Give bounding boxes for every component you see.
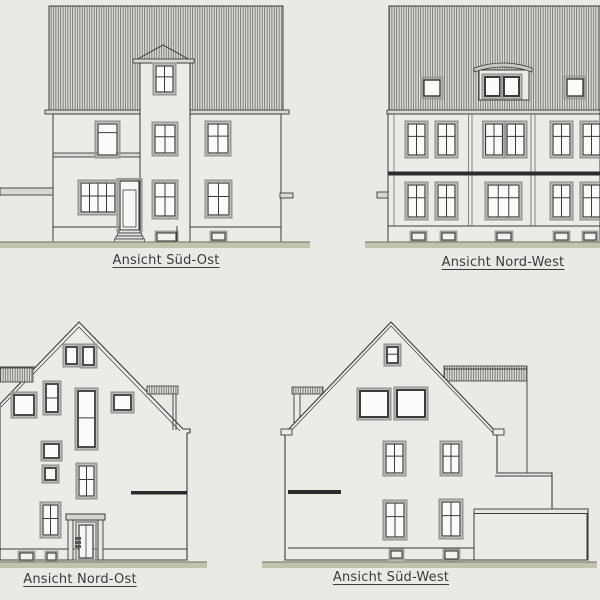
window <box>406 122 428 158</box>
window <box>441 442 462 476</box>
label-ansicht-sued-ost: Ansicht Süd-Ost <box>112 253 219 268</box>
window <box>505 122 527 158</box>
cellar-vent <box>444 550 460 561</box>
window <box>502 75 522 99</box>
window <box>96 122 120 158</box>
side-ledge <box>377 192 388 198</box>
window <box>483 122 505 158</box>
window <box>486 183 522 220</box>
window <box>41 503 61 538</box>
window <box>551 183 573 220</box>
roof-fragment <box>0 368 33 382</box>
rear-roof <box>444 366 527 381</box>
label-ansicht-nord-west: Ansicht Nord-West <box>442 255 565 270</box>
cellar-vent <box>211 232 227 242</box>
label-ansicht-nord-ost: Ansicht Nord-Ost <box>23 572 137 587</box>
window <box>385 345 401 366</box>
window <box>206 181 232 218</box>
cellar-vent <box>496 232 513 242</box>
window <box>440 500 463 539</box>
window <box>76 389 98 450</box>
cellar-vent <box>46 552 58 562</box>
window <box>112 393 134 413</box>
window <box>384 501 407 540</box>
drawing-sheet: Ansicht Süd-Ost Ansicht Nord-West Ansich… <box>0 0 600 600</box>
label-ansicht-sued-west: Ansicht Süd-West <box>333 570 449 585</box>
roof-window <box>565 77 586 99</box>
ground-line <box>0 562 207 568</box>
window <box>12 393 37 418</box>
roof-window <box>422 78 443 99</box>
cellar-vent <box>19 552 35 562</box>
window <box>44 382 61 415</box>
window <box>358 389 391 420</box>
window <box>77 464 97 499</box>
elevation-sued-ost <box>0 6 310 248</box>
window <box>153 181 178 219</box>
elevation-sued-west <box>262 322 597 568</box>
elevation-nord-west <box>365 6 600 248</box>
window <box>43 466 59 483</box>
cellar-vent <box>390 550 404 560</box>
balcony-rail <box>288 490 341 494</box>
window <box>384 442 406 476</box>
cellar-vent <box>156 232 178 243</box>
entrance-porch <box>66 514 105 560</box>
extension-roof <box>474 509 588 514</box>
window <box>551 122 573 158</box>
window <box>395 388 428 420</box>
window <box>79 181 118 215</box>
eave-kick <box>493 429 504 435</box>
eave-band <box>387 110 600 114</box>
window <box>64 345 80 367</box>
window <box>154 64 176 95</box>
window <box>81 345 97 368</box>
cellar-vent <box>441 232 457 242</box>
window <box>581 122 600 158</box>
window <box>206 122 231 156</box>
window <box>436 122 458 158</box>
ground-line <box>0 242 310 248</box>
entrance-door <box>118 179 142 231</box>
ground-line <box>365 242 600 248</box>
elevations-canvas <box>0 0 600 600</box>
window <box>581 183 600 220</box>
entrance-steps <box>115 230 145 242</box>
gable-silhouette <box>285 322 588 560</box>
floor-band <box>388 172 600 176</box>
eave-kick <box>281 429 292 435</box>
ground-line <box>262 562 597 568</box>
window <box>153 123 178 156</box>
side-ledge <box>280 193 293 198</box>
elevation-nord-ost <box>0 322 207 568</box>
cellar-vent <box>411 232 427 242</box>
cellar-vent <box>554 232 570 242</box>
cellar-vent <box>583 232 598 242</box>
window <box>42 442 62 461</box>
balcony-rail <box>131 491 187 495</box>
window <box>483 75 503 99</box>
side-canopy <box>0 188 53 195</box>
window <box>436 183 458 220</box>
window <box>406 183 428 220</box>
